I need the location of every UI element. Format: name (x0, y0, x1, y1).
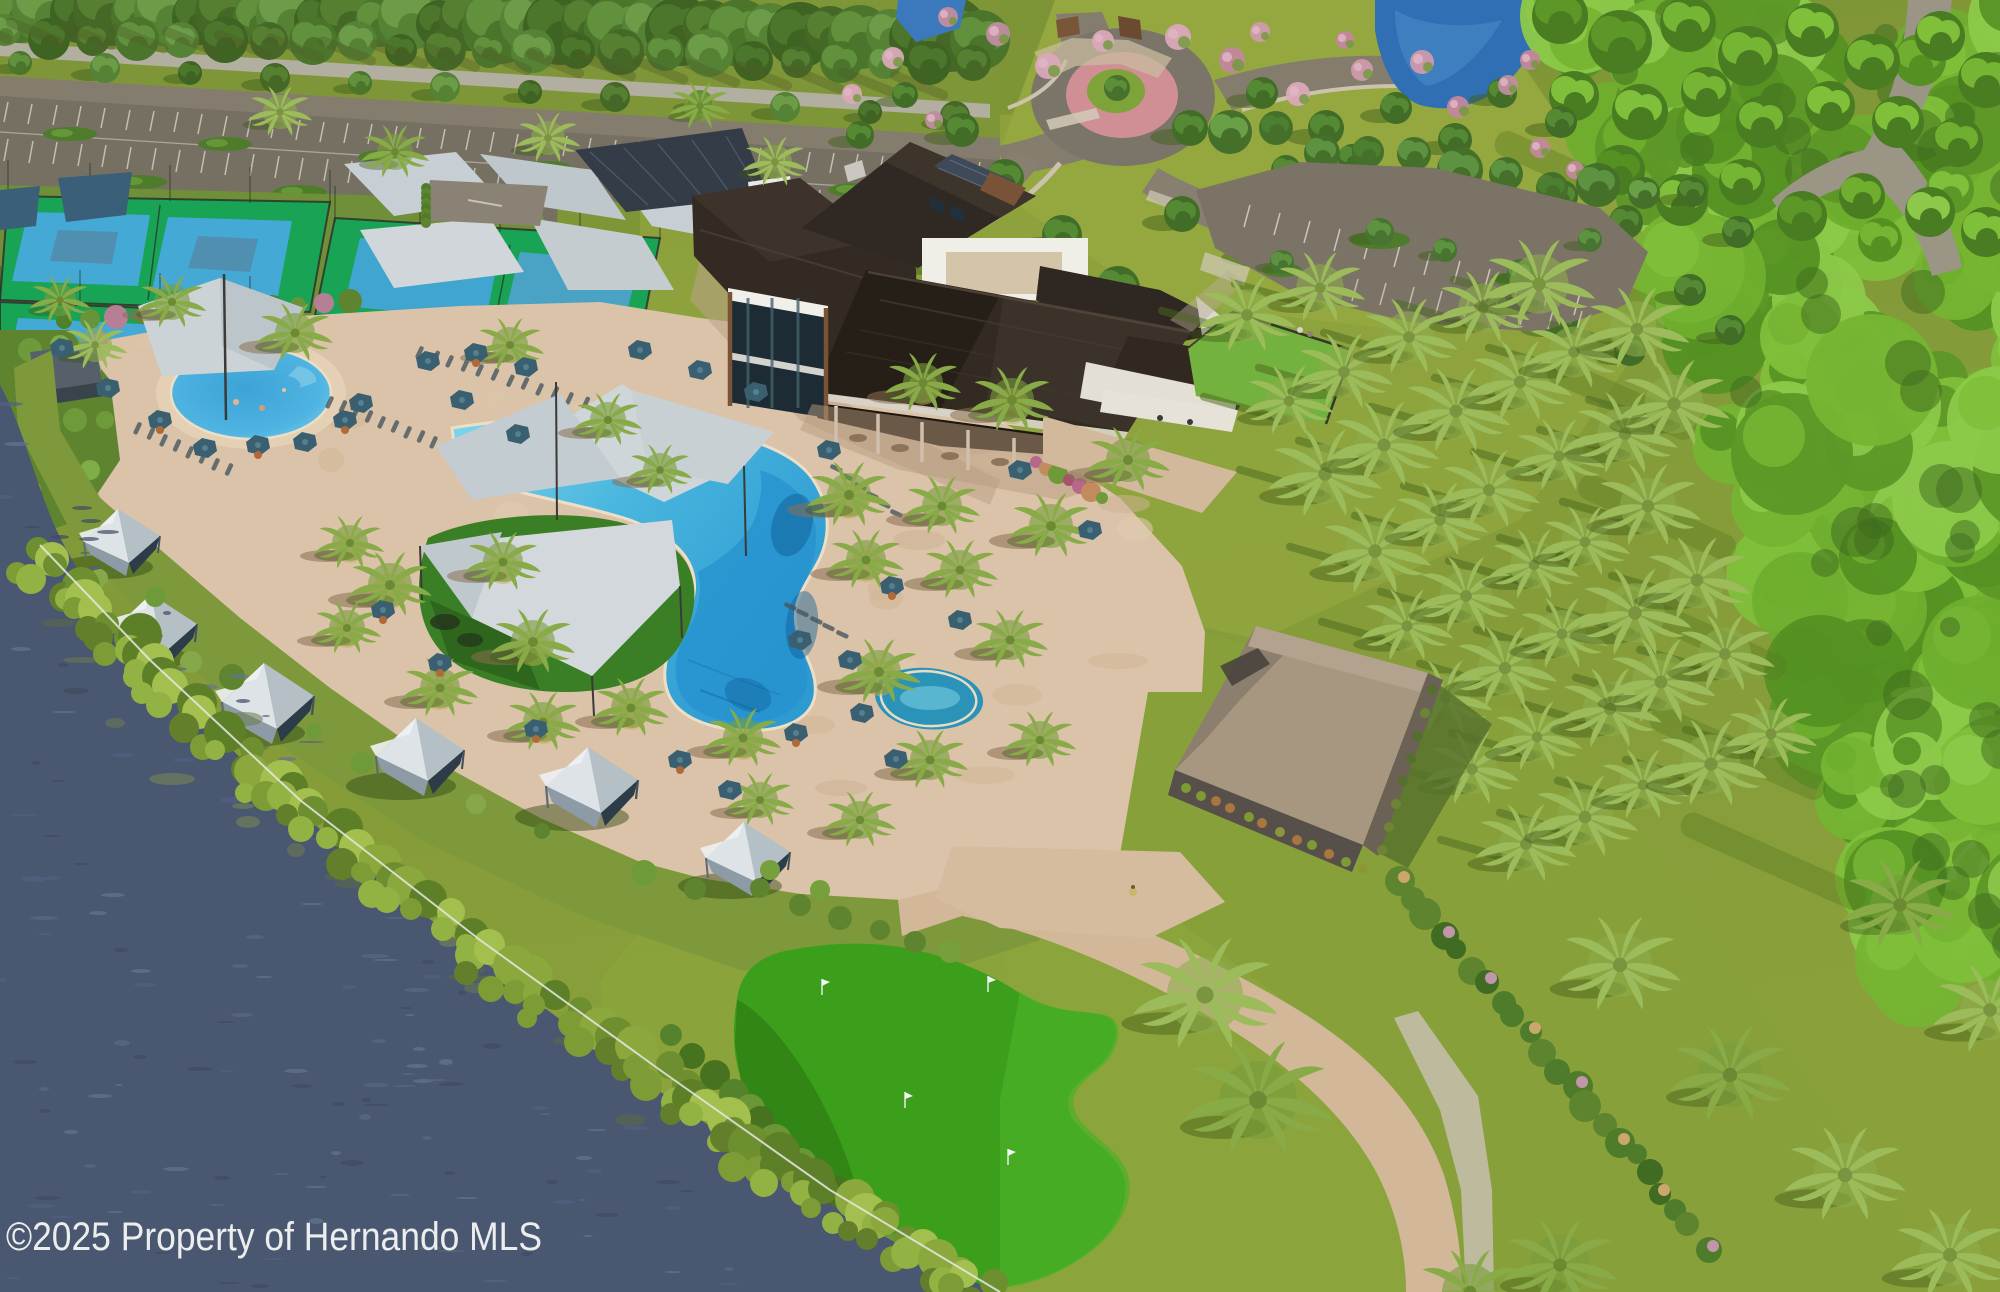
svg-text:©2025 Property of Hernando MLS: ©2025 Property of Hernando MLS (6, 1215, 542, 1259)
